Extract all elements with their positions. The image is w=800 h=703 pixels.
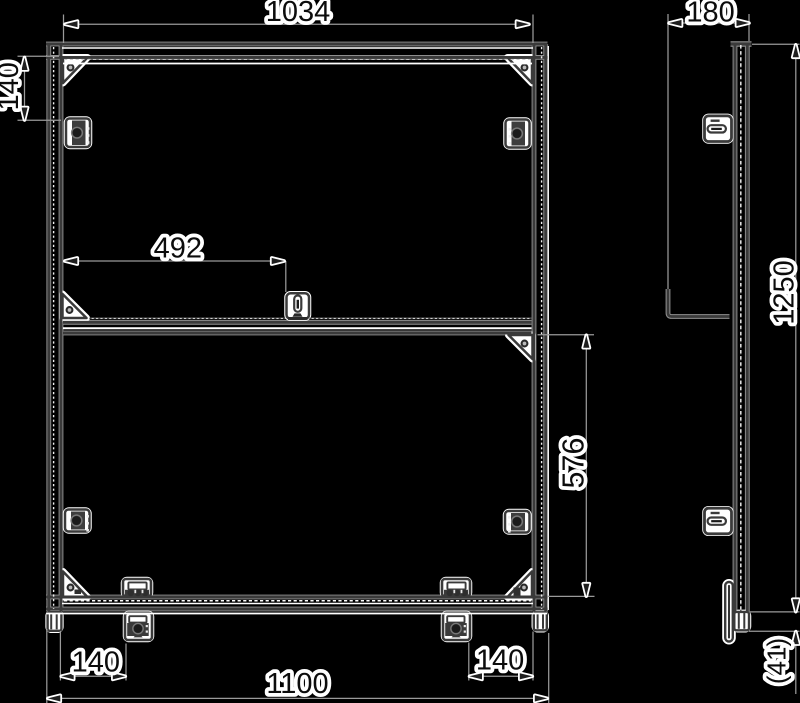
svg-text:1034: 1034 [266, 0, 331, 28]
svg-text:180: 180 [686, 0, 734, 29]
svg-text:576: 576 [557, 438, 591, 489]
svg-text:140: 140 [72, 647, 120, 679]
svg-text:(41): (41) [762, 638, 792, 684]
svg-text:140: 140 [476, 645, 524, 677]
svg-text:1100: 1100 [266, 668, 328, 700]
svg-text:492: 492 [154, 233, 202, 265]
svg-text:1250: 1250 [769, 260, 800, 325]
svg-text:140: 140 [0, 62, 25, 110]
